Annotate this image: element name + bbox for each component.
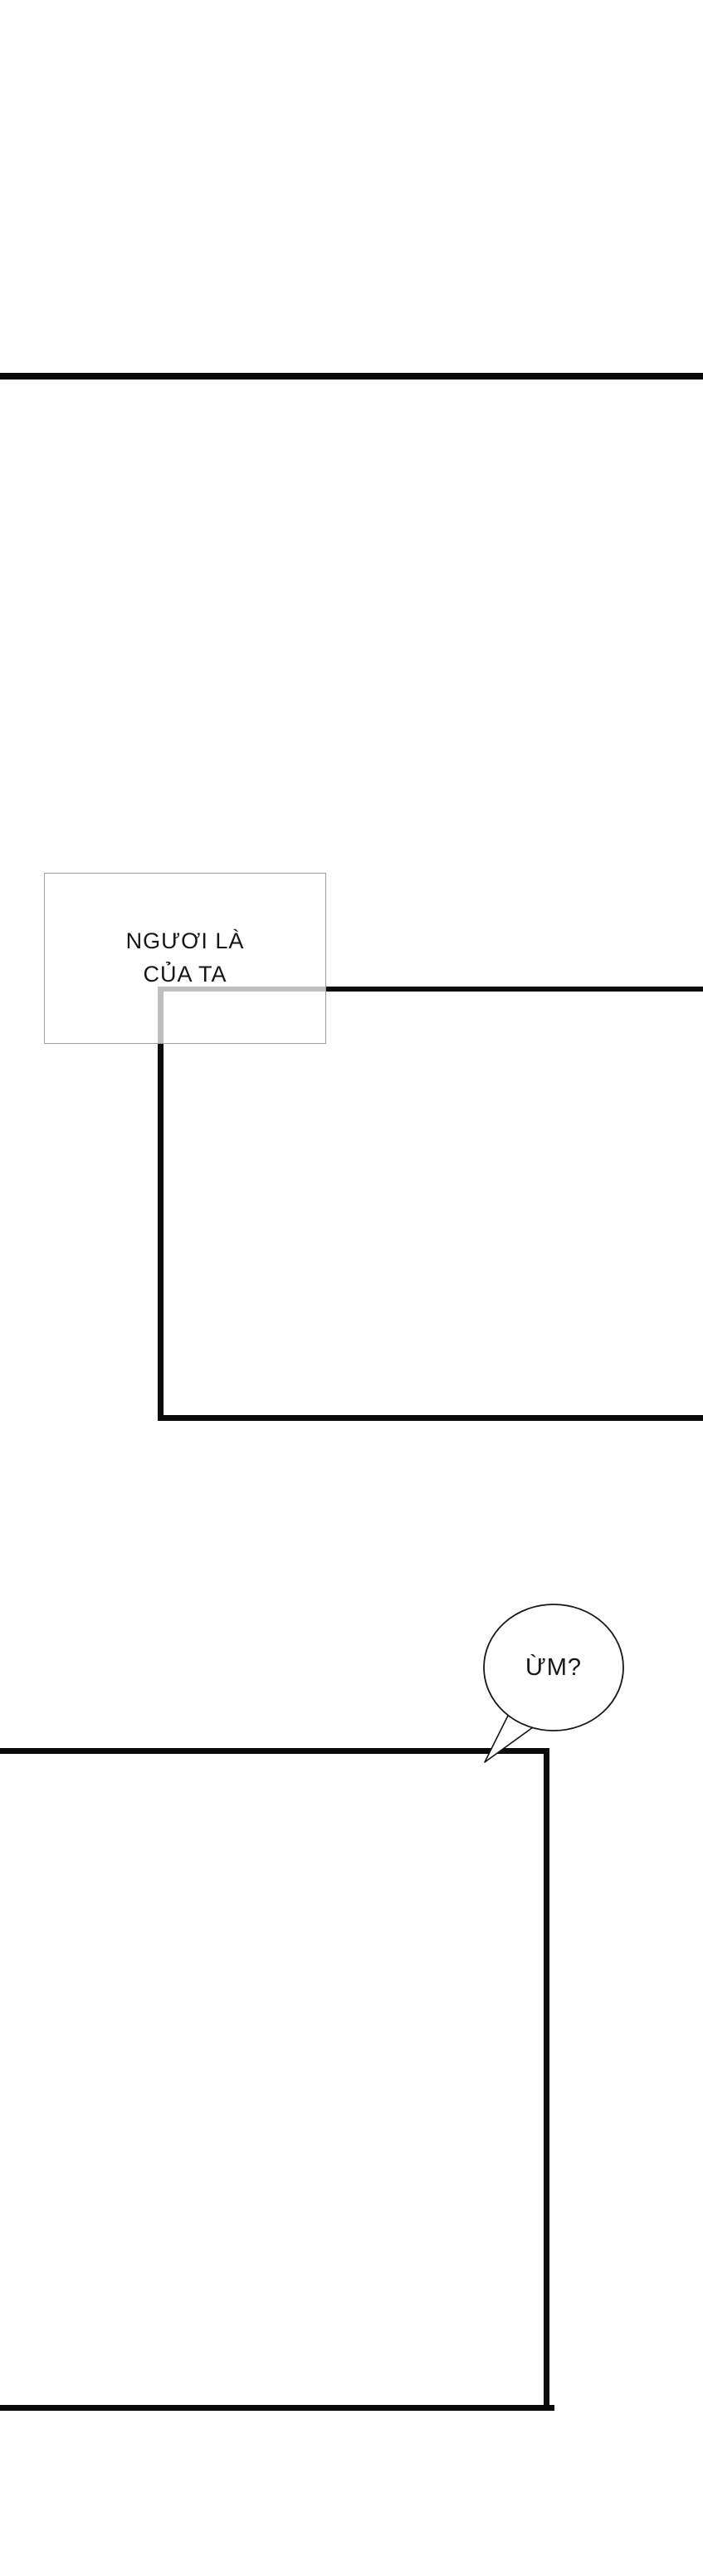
speech-bubble-text: ỪM? bbox=[496, 1650, 612, 1685]
caption-box: NGƯƠI LÀ CỦA TA bbox=[44, 873, 326, 1044]
caption-line-1: NGƯƠI LÀ bbox=[126, 929, 245, 954]
panel-2-right-border bbox=[544, 1748, 549, 2411]
speech-bubble-tail bbox=[485, 1716, 533, 1762]
comic-page: ỪM? NGƯƠI LÀ CỦA TA bbox=[0, 0, 703, 2576]
panel-2-top-border bbox=[0, 1748, 549, 1754]
caption-line-2: CỦA TA bbox=[143, 962, 227, 987]
speech-bubble bbox=[0, 0, 703, 2576]
panel-1-left-border bbox=[158, 987, 164, 1421]
panel-2-bottom-border bbox=[0, 2405, 554, 2411]
panel-1-bottom-border bbox=[158, 1415, 703, 1421]
top-rule-line bbox=[0, 373, 703, 380]
